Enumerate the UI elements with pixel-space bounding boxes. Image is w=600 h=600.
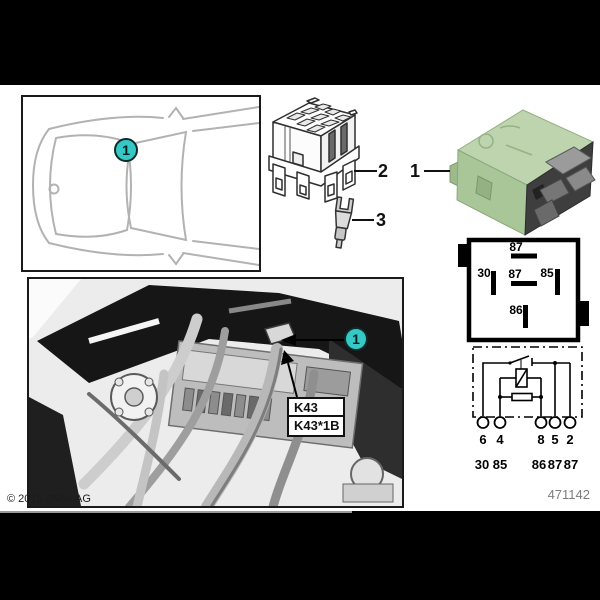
document-number: 471142 <box>510 487 590 502</box>
parts-diagram-page: 1 <box>0 0 600 600</box>
pin-85-label: 85 <box>540 266 554 280</box>
pin-diagram-right-tab <box>578 301 589 326</box>
terminal-line-art <box>331 197 354 249</box>
switch-contact <box>510 356 529 363</box>
copyright-notice: © 2015 BMW AG <box>7 493 91 505</box>
item-number-3[interactable]: 3 <box>376 210 386 230</box>
relay-code: K43 <box>289 399 343 417</box>
circuit-schematic: 6 4 8 5 2 30 85 86 87 87 <box>465 345 595 473</box>
item3-text: 3 <box>376 210 386 230</box>
terminal-number: 5 <box>551 432 558 447</box>
car-locator-panel: 1 <box>21 95 261 272</box>
item-number-2[interactable]: 2 <box>378 161 388 181</box>
letterbox-top <box>0 0 600 85</box>
pin-layout-diagram: 87 30 87 85 86 <box>455 235 595 347</box>
engine-bay-illustration <box>29 279 402 506</box>
letterbox-bottom <box>0 511 600 600</box>
car-outline <box>33 107 259 265</box>
resistor-symbol <box>512 394 532 401</box>
leader-line-item2 <box>354 170 377 172</box>
pin-85-slot <box>555 269 560 295</box>
terminal-number: 2 <box>566 432 573 447</box>
flange <box>111 374 157 420</box>
pin-function-number: 85 <box>493 457 507 472</box>
relay-code-variant: K43*1B <box>289 417 343 435</box>
pin-30-slot <box>491 271 496 295</box>
pin-87-center-slot <box>511 281 537 286</box>
pin-diagram-left-tab <box>458 244 469 267</box>
car-top-view-drawing <box>23 97 259 270</box>
socket-line-art <box>269 98 359 202</box>
leader-line-item1 <box>424 170 450 172</box>
terminal-number: 8 <box>537 432 544 447</box>
item-number-1[interactable]: 1 <box>410 161 420 181</box>
terminal-circles <box>478 417 576 428</box>
terminal-number: 6 <box>479 432 486 447</box>
separator-line <box>0 511 352 513</box>
callout-number: 1 <box>122 142 130 158</box>
pin-87-top-label: 87 <box>509 240 523 254</box>
item2-text: 2 <box>378 161 388 181</box>
pin-function-number: 86 <box>532 457 546 472</box>
callout-badge-car[interactable]: 1 <box>114 138 138 162</box>
engine-bay-photo: 1 K43 K43*1B <box>27 277 404 508</box>
leader-line-item3 <box>352 219 374 221</box>
terminal-number: 4 <box>496 432 504 447</box>
schematic-wiring <box>483 356 570 416</box>
terminal-pin-drawing <box>328 196 358 251</box>
pin-function-number: 87 <box>564 457 578 472</box>
relay-photo <box>448 98 598 238</box>
relay-body <box>450 110 595 235</box>
relay-socket-drawing <box>263 96 363 201</box>
pin-87-top-slot <box>511 254 537 259</box>
pin-86-slot <box>523 305 528 328</box>
pin-86-label: 86 <box>509 303 523 317</box>
callout-badge-photo[interactable]: 1 <box>344 327 368 351</box>
callout-number: 1 <box>352 331 360 347</box>
pin-function-number: 87 <box>548 457 562 472</box>
pin-30-label: 30 <box>477 266 491 280</box>
pin-87-center-label: 87 <box>508 267 522 281</box>
relay-designation-label: K43 K43*1B <box>287 397 345 437</box>
pin-function-number: 30 <box>475 457 489 472</box>
item1-text: 1 <box>410 161 420 181</box>
